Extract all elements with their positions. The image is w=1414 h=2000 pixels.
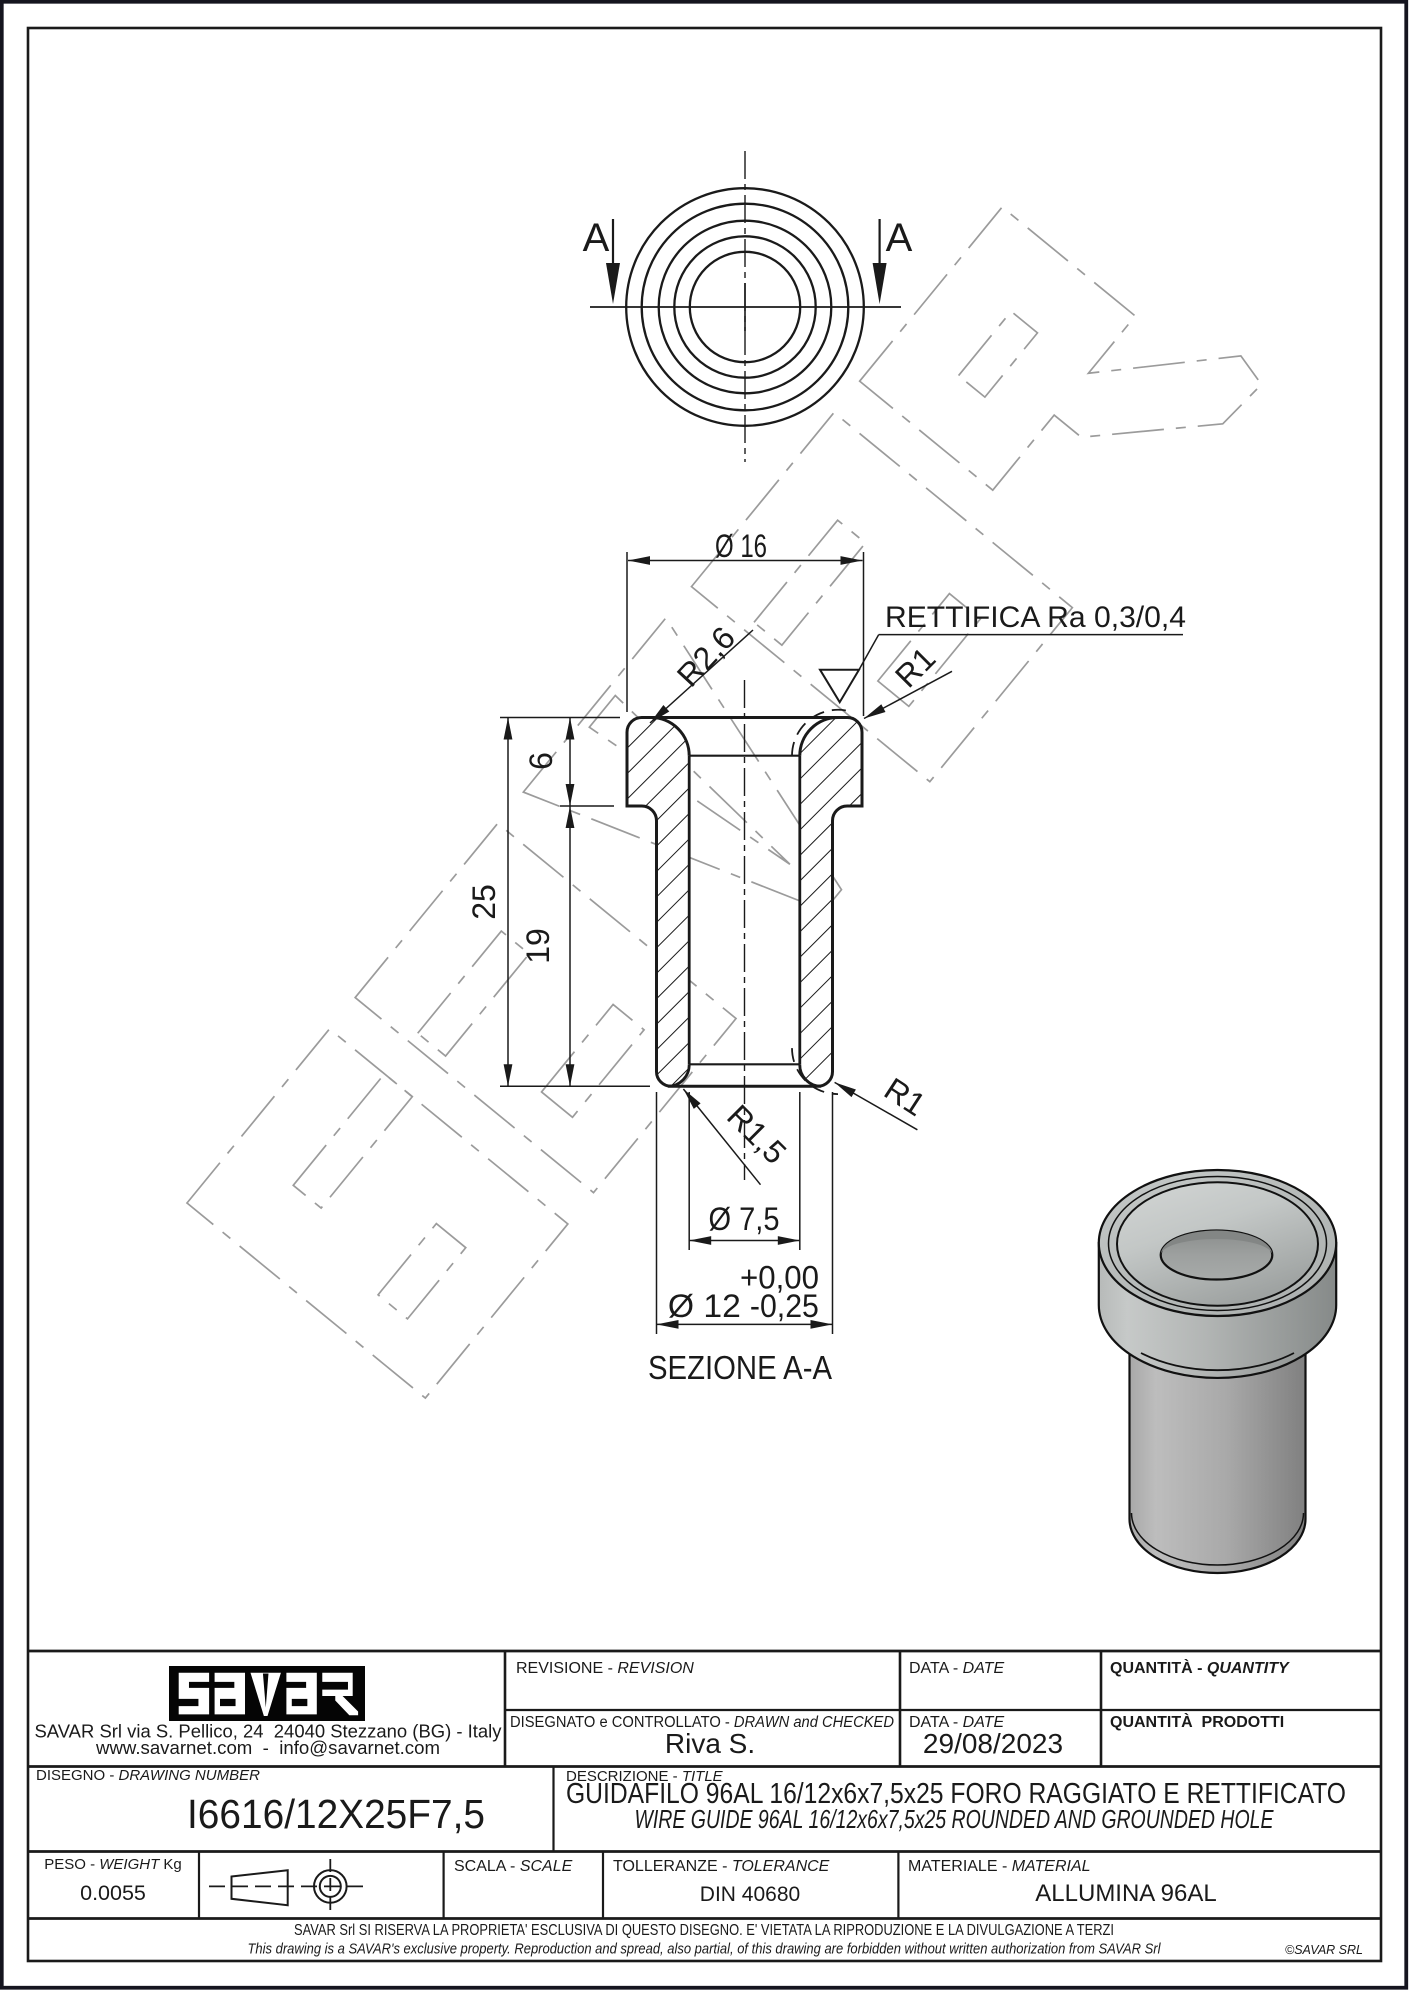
svg-text:Ø 7,5: Ø 7,5 bbox=[709, 1201, 780, 1237]
svg-text:I6616/12X25F7,5: I6616/12X25F7,5 bbox=[187, 1791, 485, 1837]
svg-text:DATA - DATE: DATA - DATE bbox=[909, 1660, 1004, 1677]
svg-text:0.0055: 0.0055 bbox=[80, 1881, 146, 1905]
svg-text:www.savarnet.com - info@sava: www.savarnet.com - info@savarnet.com bbox=[95, 1737, 440, 1758]
svg-text:WIRE GUIDE 96AL 16/12x6x7,5x25: WIRE GUIDE 96AL 16/12x6x7,5x25 ROUNDED A… bbox=[635, 1804, 1274, 1834]
svg-text:This drawing is a SAVAR's excl: This drawing is a SAVAR's exclusive prop… bbox=[248, 1941, 1162, 1958]
svg-text:DISEGNO - DRAWING NUMBER: DISEGNO - DRAWING NUMBER bbox=[36, 1767, 260, 1784]
svg-text:R1: R1 bbox=[878, 1071, 932, 1123]
svg-text:Riva S.: Riva S. bbox=[665, 1728, 755, 1759]
svg-text:DIN 40680: DIN 40680 bbox=[700, 1883, 800, 1906]
svg-text:A: A bbox=[583, 216, 610, 260]
svg-text:TOLLERANZE - TOLERANCE: TOLLERANZE - TOLERANCE bbox=[613, 1858, 830, 1875]
svg-text:SCALA - SCALE: SCALA - SCALE bbox=[454, 1858, 573, 1875]
svg-text:©SAVAR SRL: ©SAVAR SRL bbox=[1285, 1943, 1363, 1957]
svg-text:MATERIALE - MATERIAL: MATERIALE - MATERIAL bbox=[908, 1858, 1091, 1875]
svg-text:R2,6: R2,6 bbox=[670, 620, 742, 694]
svg-text:A: A bbox=[886, 216, 913, 260]
svg-text:R1,5: R1,5 bbox=[720, 1098, 793, 1171]
svg-text:Ø 16: Ø 16 bbox=[715, 528, 767, 564]
svg-text:-0,25: -0,25 bbox=[750, 1288, 819, 1324]
svg-text:19: 19 bbox=[520, 928, 556, 964]
svg-text:29/08/2023: 29/08/2023 bbox=[923, 1728, 1063, 1759]
svg-text:REVISIONE - REVISION: REVISIONE - REVISION bbox=[516, 1660, 694, 1677]
svg-text:QUANTITÀ - QUANTITY: QUANTITÀ - QUANTITY bbox=[1110, 1658, 1290, 1677]
svg-text:SEZIONE A-A: SEZIONE A-A bbox=[648, 1349, 832, 1386]
svg-text:6: 6 bbox=[523, 752, 559, 770]
svg-text:25: 25 bbox=[466, 884, 502, 920]
svg-text:SAVAR Srl SI RISERVA LA PROPRI: SAVAR Srl SI RISERVA LA PROPRIETA' ESCLU… bbox=[294, 1922, 1114, 1939]
svg-text:QUANTITÀ PRODOTTI: QUANTITÀ PRODOTTI bbox=[1110, 1712, 1284, 1731]
svg-text:R1: R1 bbox=[888, 640, 942, 694]
svg-text:Ø 12: Ø 12 bbox=[668, 1288, 741, 1324]
svg-text:PESO - WEIGHT Kg: PESO - WEIGHT Kg bbox=[44, 1856, 182, 1873]
svg-text:ALLUMINA 96AL: ALLUMINA 96AL bbox=[1035, 1880, 1216, 1907]
svg-text:RETTIFICA Ra 0,3/0,4: RETTIFICA Ra 0,3/0,4 bbox=[885, 601, 1186, 634]
